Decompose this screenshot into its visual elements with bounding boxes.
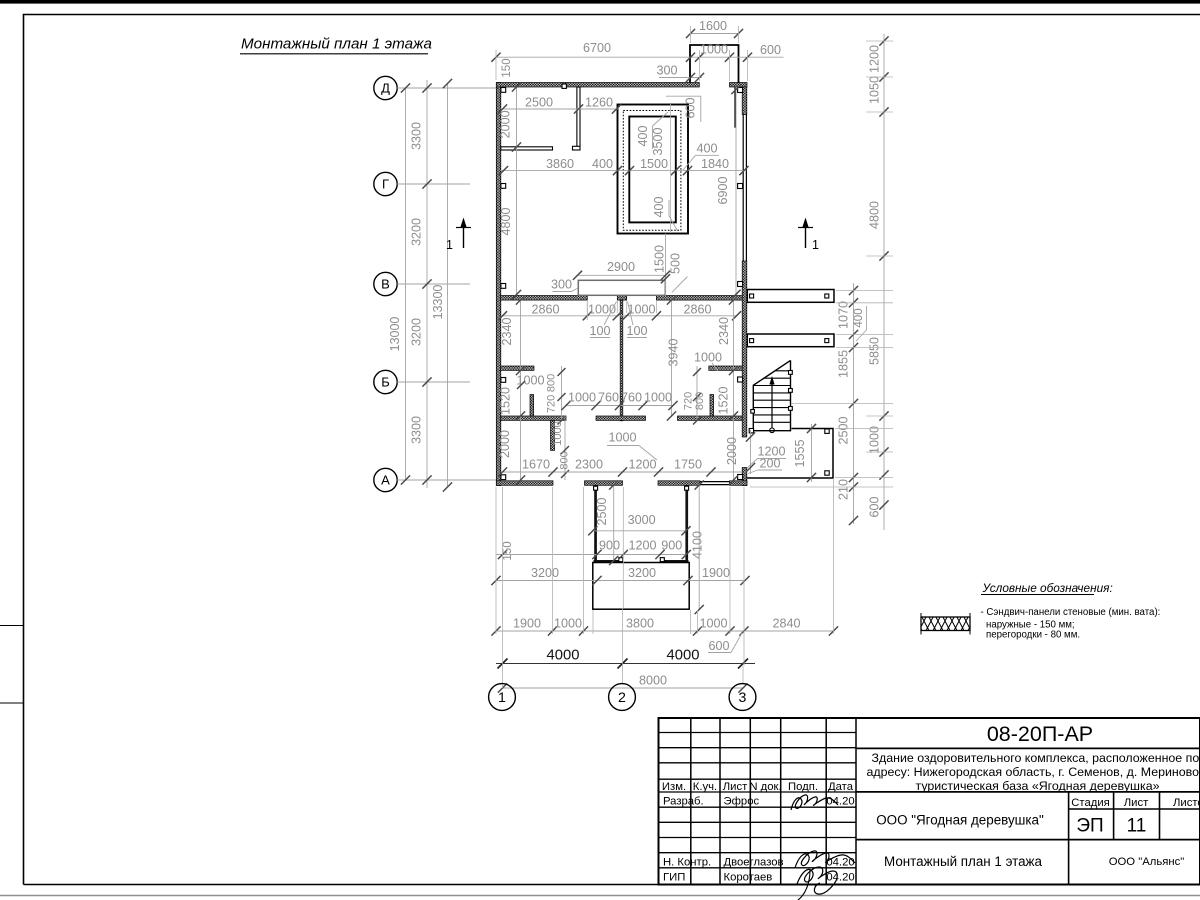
svg-text:3500: 3500 <box>651 127 665 155</box>
svg-text:1200: 1200 <box>868 45 882 73</box>
svg-text:1000: 1000 <box>552 421 564 445</box>
svg-text:1000: 1000 <box>554 617 582 631</box>
svg-text:3200: 3200 <box>410 218 424 246</box>
svg-text:3300: 3300 <box>410 416 424 444</box>
svg-text:1900: 1900 <box>702 566 730 580</box>
svg-text:1855: 1855 <box>837 350 851 378</box>
svg-text:4800: 4800 <box>868 201 882 229</box>
svg-text:6900: 6900 <box>716 176 730 204</box>
svg-text:600: 600 <box>684 97 698 118</box>
svg-text:1000: 1000 <box>568 391 596 405</box>
svg-text:2500: 2500 <box>525 96 553 110</box>
svg-text:6700: 6700 <box>583 41 611 55</box>
svg-text:400: 400 <box>652 196 666 217</box>
svg-text:1260: 1260 <box>585 96 613 110</box>
svg-text:Дата: Дата <box>828 781 854 793</box>
svg-text:2900: 2900 <box>607 260 635 274</box>
svg-text:1: 1 <box>812 238 819 252</box>
svg-text:Коротаев: Коротаев <box>724 871 773 883</box>
svg-text:500: 500 <box>669 253 683 274</box>
svg-text:2000: 2000 <box>498 430 512 458</box>
svg-text:А: А <box>381 473 390 488</box>
svg-text:1200: 1200 <box>628 539 656 553</box>
svg-text:Монтажный план 1 этажа: Монтажный план 1 этажа <box>241 36 432 53</box>
svg-text:3940: 3940 <box>667 338 681 366</box>
svg-text:200: 200 <box>759 457 780 471</box>
svg-text:Стадия: Стадия <box>1071 797 1110 809</box>
svg-text:900: 900 <box>661 539 682 553</box>
svg-text:3000: 3000 <box>628 513 656 527</box>
svg-text:ГИП: ГИП <box>663 871 685 883</box>
svg-text:1600: 1600 <box>699 19 727 33</box>
svg-text:1000: 1000 <box>694 351 722 365</box>
svg-text:2: 2 <box>618 690 626 706</box>
svg-text:1520: 1520 <box>499 387 513 415</box>
svg-text:1200: 1200 <box>628 458 656 472</box>
svg-text:800: 800 <box>694 392 706 410</box>
svg-text:400: 400 <box>636 125 650 146</box>
svg-text:3800: 3800 <box>626 617 654 631</box>
svg-text:Разраб.: Разраб. <box>663 796 704 808</box>
svg-text:1000: 1000 <box>608 431 636 445</box>
svg-text:Двоеглазов: Двоеглазов <box>724 856 784 868</box>
svg-text:1: 1 <box>498 690 506 706</box>
svg-text:600: 600 <box>708 639 729 653</box>
svg-text:туристическая база «Ягодная де: туристическая база «Ягодная деревушка» <box>916 779 1160 793</box>
svg-text:В: В <box>381 277 390 292</box>
svg-text:перегородки - 80 мм.: перегородки - 80 мм. <box>986 629 1080 640</box>
svg-text:2500: 2500 <box>595 497 609 525</box>
svg-text:2500: 2500 <box>837 416 851 444</box>
svg-text:150: 150 <box>502 541 514 560</box>
svg-text:4000: 4000 <box>667 648 700 664</box>
svg-text:1555: 1555 <box>793 439 807 467</box>
svg-text:400: 400 <box>696 142 717 156</box>
svg-text:800: 800 <box>559 451 571 469</box>
svg-text:Лист: Лист <box>723 781 748 793</box>
svg-text:1000: 1000 <box>868 426 882 454</box>
svg-text:600: 600 <box>760 43 781 57</box>
svg-text:400: 400 <box>592 157 613 171</box>
svg-text:N док.: N док. <box>749 781 781 793</box>
svg-text:4100: 4100 <box>691 531 705 559</box>
svg-text:5850: 5850 <box>868 337 882 365</box>
svg-text:2300: 2300 <box>575 458 603 472</box>
svg-text:400: 400 <box>853 308 865 327</box>
svg-text:Г: Г <box>382 177 389 192</box>
svg-text:1520: 1520 <box>717 386 731 414</box>
svg-text:К.уч.: К.уч. <box>693 781 717 793</box>
svg-text:08-20П-АР: 08-20П-АР <box>987 722 1093 746</box>
svg-text:720: 720 <box>546 395 558 413</box>
svg-text:1070: 1070 <box>837 301 851 329</box>
svg-text:Здание оздоровительного компле: Здание оздоровительного комплекса, распо… <box>872 751 1200 765</box>
svg-text:2000: 2000 <box>498 110 512 138</box>
svg-text:Эфрос: Эфрос <box>724 796 760 808</box>
svg-text:Б: Б <box>381 375 390 390</box>
svg-text:2860: 2860 <box>531 303 559 317</box>
svg-text:1500: 1500 <box>653 245 667 273</box>
svg-text:- Сэндвич-панели стеновые (мин: - Сэндвич-панели стеновые (мин. вата): <box>981 607 1161 618</box>
svg-text:1750: 1750 <box>674 458 702 472</box>
svg-text:1000: 1000 <box>700 43 728 57</box>
svg-text:4800: 4800 <box>499 207 513 235</box>
svg-text:Н. Контр.: Н. Контр. <box>663 856 711 868</box>
svg-text:100: 100 <box>626 324 647 338</box>
svg-text:720: 720 <box>683 392 695 410</box>
svg-text:Лист: Лист <box>1124 797 1149 809</box>
svg-text:300: 300 <box>656 64 677 78</box>
svg-text:Условные обозначения:: Условные обозначения: <box>982 581 1113 595</box>
svg-text:760: 760 <box>621 391 642 405</box>
svg-text:8000: 8000 <box>639 674 667 688</box>
svg-text:1050: 1050 <box>868 76 882 104</box>
svg-text:Подп.: Подп. <box>788 781 818 793</box>
svg-text:800: 800 <box>546 374 558 392</box>
svg-text:150: 150 <box>501 58 513 77</box>
svg-text:1000: 1000 <box>699 617 727 631</box>
svg-text:2000: 2000 <box>725 437 739 465</box>
svg-text:2840: 2840 <box>772 617 800 631</box>
svg-text:1900: 1900 <box>513 617 541 631</box>
svg-text:ООО "Ягодная деревушка": ООО "Ягодная деревушка" <box>876 813 1044 828</box>
svg-text:2340: 2340 <box>500 317 514 345</box>
svg-text:3200: 3200 <box>628 566 656 580</box>
svg-text:2860: 2860 <box>683 303 711 317</box>
svg-text:3860: 3860 <box>546 157 574 171</box>
svg-text:1670: 1670 <box>522 458 550 472</box>
svg-text:900: 900 <box>599 539 620 553</box>
svg-text:600: 600 <box>868 496 882 517</box>
svg-text:Д: Д <box>381 81 390 96</box>
svg-text:11: 11 <box>1127 815 1147 836</box>
svg-text:1: 1 <box>446 238 453 252</box>
svg-text:ООО "Альянс": ООО "Альянс" <box>1109 856 1185 868</box>
svg-text:300: 300 <box>551 278 572 292</box>
svg-text:760: 760 <box>598 391 619 405</box>
svg-text:1840: 1840 <box>701 157 729 171</box>
svg-text:2340: 2340 <box>717 317 731 345</box>
svg-text:4000: 4000 <box>547 648 580 664</box>
svg-text:ЭП: ЭП <box>1076 815 1103 836</box>
svg-text:Листов: Листов <box>1173 797 1200 809</box>
svg-text:04.20: 04.20 <box>826 871 854 883</box>
svg-text:адресу: Нижегородская область,: адресу: Нижегородская область, г. Семено… <box>867 765 1200 779</box>
svg-text:100: 100 <box>589 324 610 338</box>
svg-text:13300: 13300 <box>431 285 445 320</box>
svg-text:3200: 3200 <box>410 318 424 346</box>
svg-text:210: 210 <box>837 479 851 500</box>
svg-text:Монтажный план 1 этажа: Монтажный план 1 этажа <box>884 854 1042 869</box>
svg-text:3: 3 <box>739 690 747 706</box>
svg-text:1500: 1500 <box>640 157 668 171</box>
svg-text:Изм.: Изм. <box>662 781 686 793</box>
svg-text:13000: 13000 <box>388 317 402 352</box>
svg-text:1000: 1000 <box>627 303 655 317</box>
svg-text:3200: 3200 <box>531 566 559 580</box>
svg-text:04.20: 04.20 <box>826 796 854 808</box>
svg-text:1000: 1000 <box>644 391 672 405</box>
svg-text:3300: 3300 <box>410 122 424 150</box>
